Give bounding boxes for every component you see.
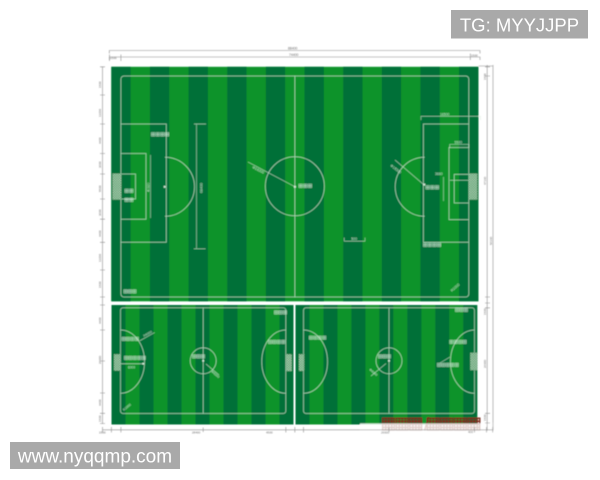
svg-text:3000: 3000 [98,161,102,168]
svg-text:5500: 5500 [455,140,463,144]
svg-text:400: 400 [468,430,473,434]
svg-text:40320: 40320 [147,182,151,192]
svg-text:26600: 26600 [98,355,102,364]
svg-text:3660: 3660 [435,172,443,176]
svg-text:5500: 5500 [98,185,102,192]
svg-text:11000: 11000 [98,254,102,262]
svg-text:50160: 50160 [489,236,493,245]
svg-text:26600: 26600 [483,359,487,368]
svg-text:1500: 1500 [99,431,106,435]
svg-text:1500: 1500 [98,415,102,422]
svg-text:www.nyqqmp.com: www.nyqqmp.com [17,447,172,468]
svg-text:500: 500 [351,237,357,241]
svg-text:3000: 3000 [98,209,102,216]
svg-text:1500: 1500 [483,73,487,80]
svg-text:16500: 16500 [440,112,450,116]
svg-text:1500: 1500 [471,54,478,58]
svg-text:1500: 1500 [110,56,117,60]
svg-text:68400: 68400 [200,183,204,193]
svg-text:6000: 6000 [128,366,135,370]
svg-text:26600: 26600 [381,431,390,435]
svg-text:1500: 1500 [98,81,102,88]
svg-text:TG: MYYJJPP: TG: MYYJJPP [460,15,579,36]
svg-text:4500: 4500 [266,431,273,435]
svg-text:4400: 4400 [98,137,102,144]
svg-text:4400: 4400 [98,317,102,324]
svg-text:4400: 4400 [98,230,102,237]
svg-text:88400: 88400 [288,47,298,51]
svg-text:1500: 1500 [98,281,102,288]
svg-text:11000: 11000 [98,109,102,117]
svg-text:74400: 74400 [289,53,299,57]
svg-text:4400: 4400 [98,399,102,406]
svg-text:28400: 28400 [192,431,201,435]
svg-text:47160: 47160 [483,176,487,185]
svg-text:1500: 1500 [483,308,487,315]
svg-text:1500: 1500 [483,414,487,421]
